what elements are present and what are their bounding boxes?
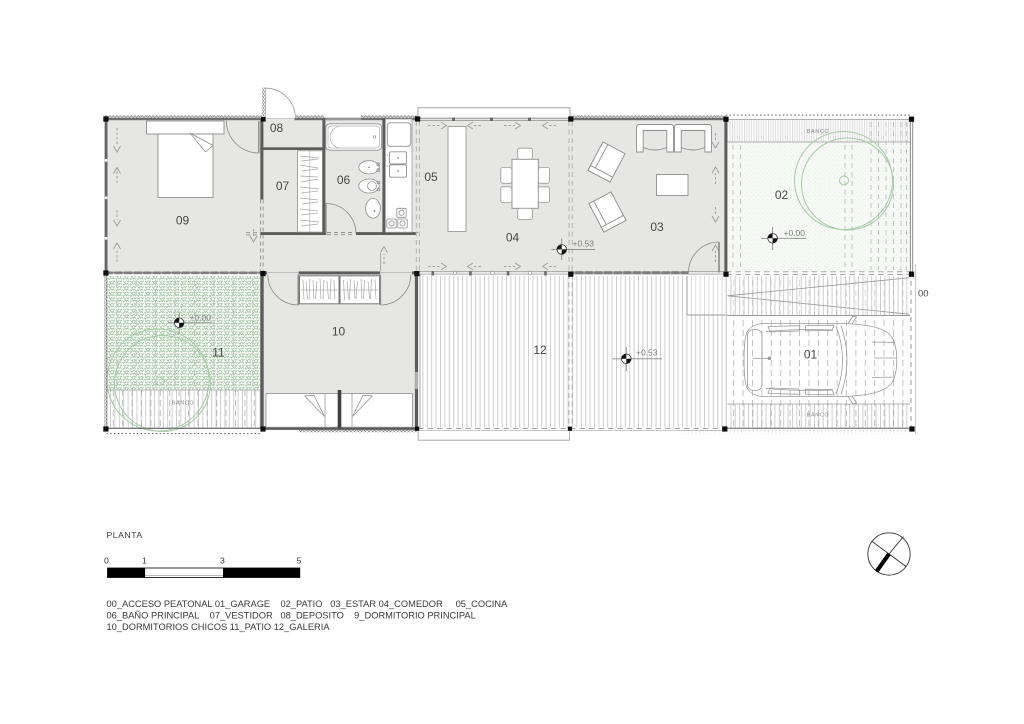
svg-text:04: 04 [506,231,520,245]
svg-text:06_BAÑO PRINCIPAL 07_VESTID: 06_BAÑO PRINCIPAL 07_VESTIDOR 08_DEPOSIT… [107,611,476,621]
svg-text:08: 08 [270,121,284,135]
svg-text:00: 00 [918,289,929,300]
svg-text:PLANTA: PLANTA [107,530,143,540]
svg-text:10_DORMITORIOS CHICOS 11_PATI: 10_DORMITORIOS CHICOS 11_PATIO 12_GALERI… [107,622,331,632]
svg-text:01: 01 [804,348,818,362]
svg-text:BANCO: BANCO [172,401,195,407]
svg-text:1: 1 [142,556,147,566]
svg-text:+0.00: +0.00 [784,228,806,238]
svg-text:03: 03 [650,220,664,234]
svg-text:09: 09 [176,214,190,228]
svg-text:5: 5 [297,556,302,566]
svg-text:00_ACCESO PEATONAL 01_GARAGE: 00_ACCESO PEATONAL 01_GARAGE 02_PATIO 03… [107,599,509,609]
svg-text:05: 05 [424,170,438,184]
svg-text:10: 10 [332,325,346,339]
svg-text:12: 12 [533,343,547,357]
svg-text:3: 3 [220,556,225,566]
svg-text:+0.00: +0.00 [190,313,212,323]
svg-text:11: 11 [212,346,225,360]
svg-text:02: 02 [775,188,789,202]
svg-text:+0.53: +0.53 [573,239,595,249]
svg-text:07: 07 [276,179,290,193]
svg-text:BANCO: BANCO [807,413,830,419]
svg-text:06: 06 [337,173,351,187]
svg-text:+0.53: +0.53 [636,348,658,358]
svg-text:0: 0 [104,556,109,566]
svg-text:BANCO: BANCO [807,129,830,135]
